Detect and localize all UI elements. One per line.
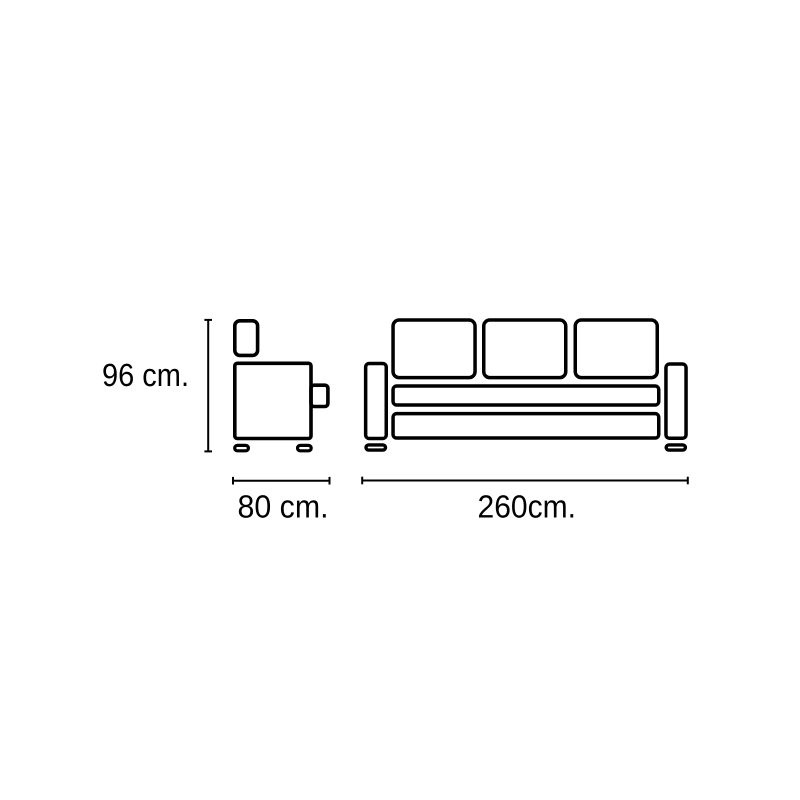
svg-text:96 cm.: 96 cm. xyxy=(102,357,189,393)
svg-text:80 cm.: 80 cm. xyxy=(238,489,329,525)
svg-text:260cm.: 260cm. xyxy=(478,489,577,525)
